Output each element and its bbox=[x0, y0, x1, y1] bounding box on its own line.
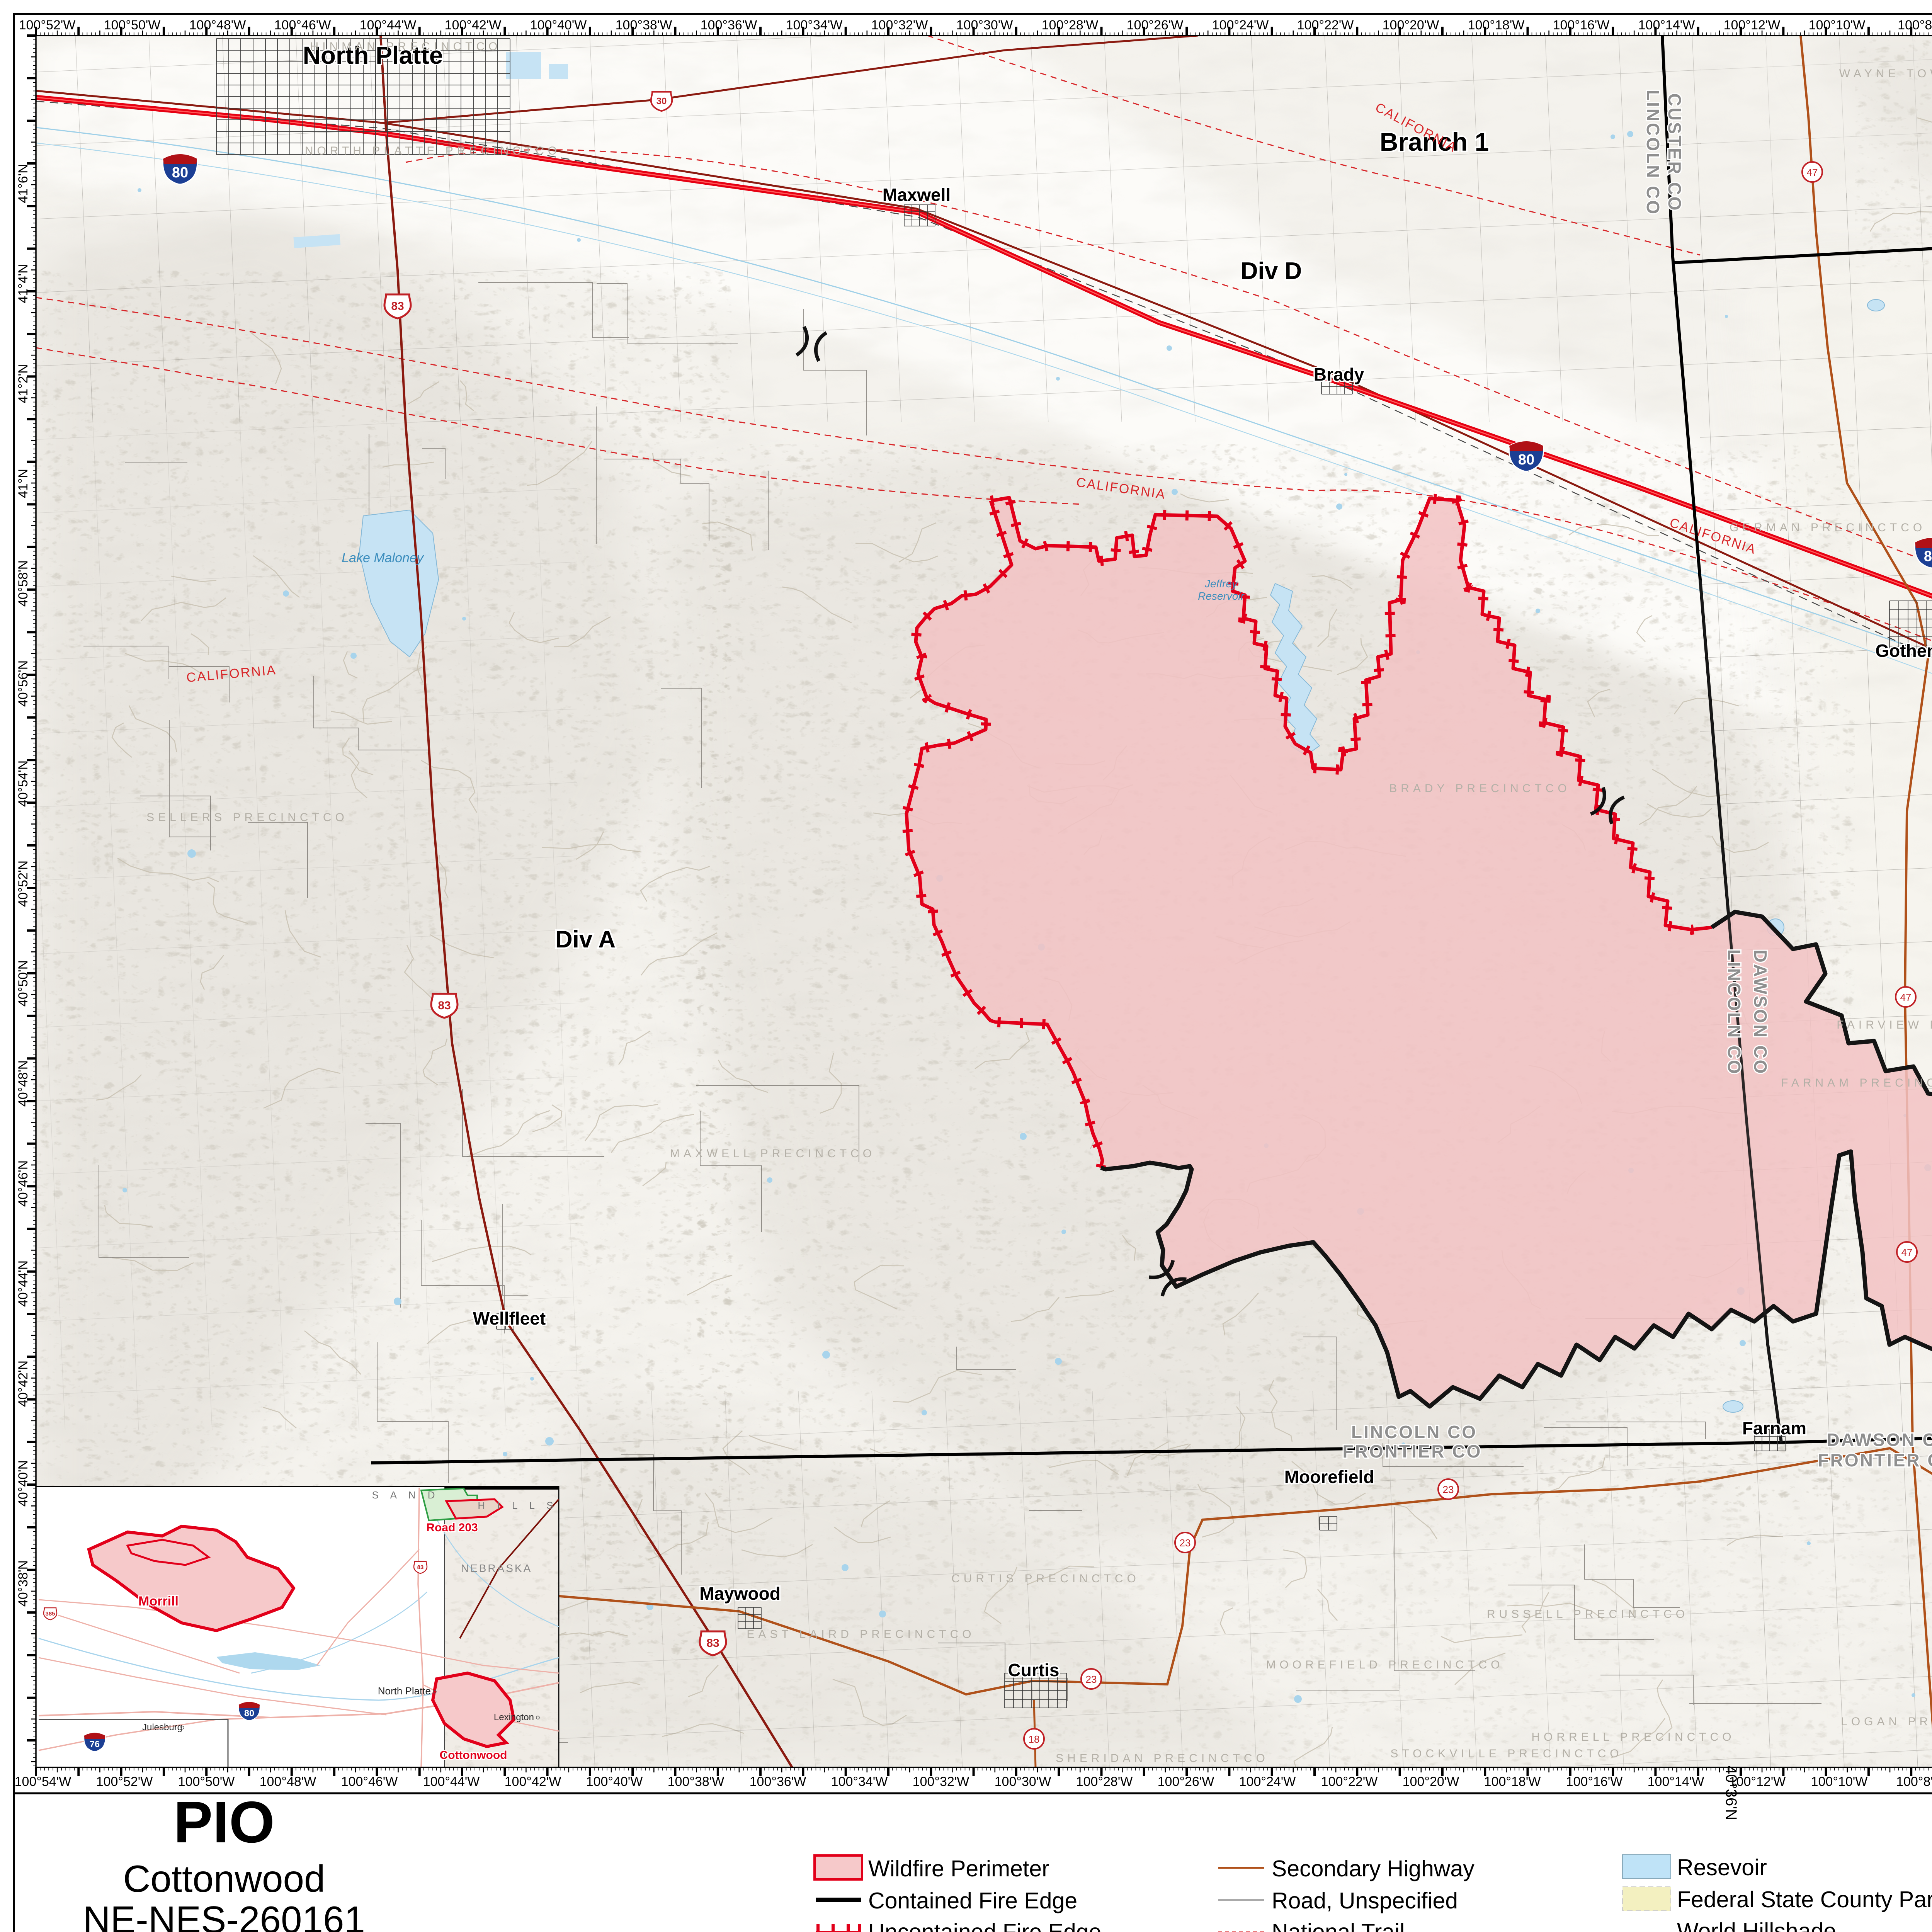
svg-text:RUSSELL PRECINCTCO: RUSSELL PRECINCTCO bbox=[1487, 1608, 1689, 1621]
svg-text:EAST LAIRD PRECINCTCO: EAST LAIRD PRECINCTCO bbox=[747, 1628, 975, 1641]
svg-text:41°2'N: 41°2'N bbox=[16, 364, 31, 403]
svg-text:80: 80 bbox=[172, 165, 188, 181]
svg-text:100°16'W: 100°16'W bbox=[1566, 1774, 1623, 1789]
svg-text:23: 23 bbox=[1443, 1484, 1454, 1495]
svg-text:100°24'W: 100°24'W bbox=[1239, 1774, 1296, 1789]
svg-text:Road 203: Road 203 bbox=[426, 1521, 478, 1534]
svg-text:Uncontained Fire Edge: Uncontained Fire Edge bbox=[868, 1919, 1101, 1932]
svg-text:385: 385 bbox=[45, 1611, 55, 1617]
svg-text:40°56'N: 40°56'N bbox=[16, 660, 31, 707]
svg-text:Cottonwood: Cottonwood bbox=[440, 1749, 507, 1762]
svg-text:100°12'W: 100°12'W bbox=[1729, 1774, 1786, 1789]
svg-text:BRADY PRECINCTCO: BRADY PRECINCTCO bbox=[1389, 782, 1571, 795]
svg-text:100°44'W: 100°44'W bbox=[360, 18, 417, 32]
svg-text:100°24'W: 100°24'W bbox=[1212, 18, 1269, 32]
svg-text:STOCKVILLE PRECINCTCO: STOCKVILLE PRECINCTCO bbox=[1390, 1747, 1622, 1760]
svg-text:Cottonwood: Cottonwood bbox=[123, 1857, 325, 1900]
svg-text:NORTH PLATTE PRECINCTCO: NORTH PLATTE PRECINCTCO bbox=[305, 145, 561, 157]
svg-text:41°N: 41°N bbox=[16, 469, 31, 498]
svg-text:Federal State County Parks: Federal State County Parks bbox=[1677, 1887, 1932, 1912]
svg-text:Julesburg: Julesburg bbox=[142, 1722, 182, 1733]
svg-text:41°4'N: 41°4'N bbox=[16, 264, 31, 303]
svg-text:40°50'N: 40°50'N bbox=[16, 960, 31, 1007]
svg-text:Morrill: Morrill bbox=[138, 1594, 179, 1609]
svg-text:100°38'W: 100°38'W bbox=[668, 1774, 724, 1789]
svg-text:100°40'W: 100°40'W bbox=[530, 18, 587, 32]
svg-text:83: 83 bbox=[438, 999, 451, 1012]
svg-text:83: 83 bbox=[391, 300, 404, 313]
svg-text:LINCOLN CO: LINCOLN CO bbox=[1351, 1422, 1477, 1442]
svg-text:Curtis: Curtis bbox=[1008, 1660, 1060, 1680]
svg-text:100°8'W: 100°8'W bbox=[1896, 1774, 1932, 1789]
svg-text:100°42'W: 100°42'W bbox=[445, 18, 502, 32]
svg-text:100°30'W: 100°30'W bbox=[956, 18, 1013, 32]
svg-text:MAXWELL PRECINCTCO: MAXWELL PRECINCTCO bbox=[670, 1147, 876, 1160]
svg-text:83: 83 bbox=[417, 1564, 424, 1571]
svg-text:FAIRVIEW PRECINCTCO: FAIRVIEW PRECINCTCO bbox=[1837, 1019, 1932, 1031]
svg-text:100°14'W: 100°14'W bbox=[1638, 18, 1695, 32]
svg-text:Resevoir: Resevoir bbox=[1677, 1855, 1767, 1880]
svg-text:Jeffrey: Jeffrey bbox=[1204, 578, 1238, 590]
svg-text:Lake Maloney: Lake Maloney bbox=[342, 551, 424, 565]
svg-text:100°22'W: 100°22'W bbox=[1297, 18, 1354, 32]
svg-text:100°14'W: 100°14'W bbox=[1648, 1774, 1704, 1789]
svg-text:100°36'W: 100°36'W bbox=[750, 1774, 806, 1789]
svg-text:FRONTIER CO: FRONTIER CO bbox=[1343, 1441, 1482, 1461]
svg-text:100°32'W: 100°32'W bbox=[871, 18, 928, 32]
svg-text:40°44'N: 40°44'N bbox=[16, 1260, 31, 1307]
svg-text:40°38'N: 40°38'N bbox=[16, 1560, 31, 1607]
svg-text:23: 23 bbox=[1180, 1537, 1191, 1549]
svg-text:GERMAN PRECINCTCO: GERMAN PRECINCTCO bbox=[1730, 521, 1926, 534]
svg-text:Brady: Brady bbox=[1314, 364, 1364, 384]
svg-text:H I L L S: H I L L S bbox=[478, 1500, 558, 1511]
svg-text:100°22'W: 100°22'W bbox=[1321, 1774, 1378, 1789]
svg-text:100°10'W: 100°10'W bbox=[1809, 18, 1866, 32]
svg-text:40°40'N: 40°40'N bbox=[16, 1460, 31, 1507]
svg-text:SELLERS PRECINCTCO: SELLERS PRECINCTCO bbox=[146, 811, 348, 824]
svg-text:DAWSON CO: DAWSON CO bbox=[1750, 950, 1770, 1075]
svg-text:100°54'W: 100°54'W bbox=[15, 1774, 71, 1789]
svg-text:NE-NES-260161: NE-NES-260161 bbox=[83, 1898, 365, 1932]
svg-text:FARNAM PRECINCTCO: FARNAM PRECINCTCO bbox=[1781, 1077, 1932, 1089]
svg-text:Wellfleet: Wellfleet bbox=[473, 1308, 546, 1328]
svg-text:North Platte: North Platte bbox=[378, 1685, 431, 1697]
svg-text:100°38'W: 100°38'W bbox=[616, 18, 672, 32]
svg-text:DAWSON CO: DAWSON CO bbox=[1827, 1430, 1932, 1450]
svg-text:23: 23 bbox=[1086, 1673, 1097, 1685]
svg-text:NEBRASKA: NEBRASKA bbox=[461, 1562, 532, 1574]
svg-text:100°40'W: 100°40'W bbox=[586, 1774, 643, 1789]
svg-text:40°42'N: 40°42'N bbox=[16, 1361, 31, 1407]
svg-text:80: 80 bbox=[1518, 452, 1534, 468]
svg-text:WAYNE TOWNSHIPCO: WAYNE TOWNSHIPCO bbox=[1839, 67, 1932, 80]
svg-text:40°54'N: 40°54'N bbox=[16, 760, 31, 807]
svg-text:Gothenburg: Gothenburg bbox=[1875, 641, 1932, 661]
svg-text:National Trail: National Trail bbox=[1272, 1919, 1405, 1932]
svg-text:Contained Fire Edge: Contained Fire Edge bbox=[868, 1888, 1077, 1913]
svg-text:76: 76 bbox=[90, 1739, 100, 1749]
svg-text:100°44'W: 100°44'W bbox=[423, 1774, 480, 1789]
svg-text:100°28'W: 100°28'W bbox=[1076, 1774, 1133, 1789]
svg-text:83: 83 bbox=[706, 1637, 719, 1650]
svg-text:40°58'N: 40°58'N bbox=[16, 560, 31, 607]
svg-text:100°42'W: 100°42'W bbox=[505, 1774, 561, 1789]
svg-text:Road, Unspecified: Road, Unspecified bbox=[1272, 1888, 1458, 1913]
svg-text:LINCOLN CO: LINCOLN CO bbox=[1724, 949, 1744, 1075]
svg-text:100°16'W: 100°16'W bbox=[1553, 18, 1610, 32]
svg-text:100°50'W: 100°50'W bbox=[104, 18, 161, 32]
svg-text:100°34'W: 100°34'W bbox=[786, 18, 843, 32]
svg-text:80: 80 bbox=[244, 1708, 254, 1718]
svg-text:Maxwell: Maxwell bbox=[883, 185, 951, 205]
svg-text:100°18'W: 100°18'W bbox=[1484, 1774, 1541, 1789]
svg-text:100°46'W: 100°46'W bbox=[274, 18, 331, 32]
svg-text:World Hillshade: World Hillshade bbox=[1677, 1918, 1836, 1932]
svg-text:FRONTIER CO: FRONTIER CO bbox=[1818, 1450, 1932, 1470]
svg-text:100°50'W: 100°50'W bbox=[178, 1774, 235, 1789]
svg-text:80: 80 bbox=[1924, 548, 1932, 565]
svg-text:100°12'W: 100°12'W bbox=[1724, 18, 1781, 32]
svg-text:Maywood: Maywood bbox=[699, 1583, 781, 1604]
svg-text:Div D: Div D bbox=[1241, 258, 1302, 284]
svg-text:100°52'W: 100°52'W bbox=[19, 18, 76, 32]
svg-text:100°52'W: 100°52'W bbox=[96, 1774, 153, 1789]
svg-text:40°52'N: 40°52'N bbox=[16, 861, 31, 907]
svg-text:100°20'W: 100°20'W bbox=[1383, 18, 1439, 32]
svg-text:40°46'N: 40°46'N bbox=[16, 1160, 31, 1207]
svg-text:PIO: PIO bbox=[173, 1789, 275, 1855]
svg-text:100°32'W: 100°32'W bbox=[913, 1774, 969, 1789]
svg-text:LINCOLN CO: LINCOLN CO bbox=[1643, 90, 1663, 216]
svg-text:100°34'W: 100°34'W bbox=[831, 1774, 888, 1789]
svg-text:Farnam: Farnam bbox=[1742, 1418, 1806, 1438]
svg-text:100°8'W: 100°8'W bbox=[1898, 18, 1932, 32]
svg-text:18: 18 bbox=[1029, 1733, 1040, 1745]
svg-text:HINMAN PRECINCTCO: HINMAN PRECINCTCO bbox=[310, 40, 501, 53]
svg-text:SHERIDAN PRECINCTCO: SHERIDAN PRECINCTCO bbox=[1056, 1752, 1269, 1765]
svg-text:MOOREFIELD PRECINCTCO: MOOREFIELD PRECINCTCO bbox=[1266, 1658, 1503, 1671]
svg-text:47: 47 bbox=[1900, 992, 1912, 1003]
svg-text:100°10'W: 100°10'W bbox=[1811, 1774, 1868, 1789]
svg-text:47: 47 bbox=[1901, 1247, 1913, 1258]
svg-text:CUSTER CO: CUSTER CO bbox=[1665, 94, 1685, 212]
svg-text:100°36'W: 100°36'W bbox=[701, 18, 757, 32]
svg-text:100°18'W: 100°18'W bbox=[1468, 18, 1525, 32]
svg-text:100°48'W: 100°48'W bbox=[189, 18, 246, 32]
svg-text:100°26'W: 100°26'W bbox=[1127, 18, 1184, 32]
svg-text:47: 47 bbox=[1807, 167, 1818, 178]
svg-text:100°30'W: 100°30'W bbox=[995, 1774, 1051, 1789]
svg-text:100°20'W: 100°20'W bbox=[1403, 1774, 1459, 1789]
svg-text:CURTIS PRECINCTCO: CURTIS PRECINCTCO bbox=[951, 1572, 1140, 1585]
svg-text:41°6'N: 41°6'N bbox=[16, 164, 31, 203]
svg-text:Lexington: Lexington bbox=[494, 1712, 534, 1723]
svg-text:30: 30 bbox=[656, 96, 667, 107]
svg-text:100°26'W: 100°26'W bbox=[1158, 1774, 1214, 1789]
svg-text:Wildfire Perimeter: Wildfire Perimeter bbox=[868, 1856, 1049, 1881]
svg-text:100°28'W: 100°28'W bbox=[1042, 18, 1099, 32]
svg-text:Secondary Highway: Secondary Highway bbox=[1272, 1856, 1475, 1881]
svg-text:Moorefield: Moorefield bbox=[1284, 1467, 1374, 1487]
svg-text:HORRELL PRECINCTCO: HORRELL PRECINCTCO bbox=[1531, 1731, 1735, 1743]
svg-text:100°48'W: 100°48'W bbox=[260, 1774, 316, 1789]
svg-text:Reservoir: Reservoir bbox=[1198, 590, 1245, 602]
svg-text:S A N D: S A N D bbox=[372, 1489, 439, 1501]
svg-text:100°46'W: 100°46'W bbox=[341, 1774, 398, 1789]
svg-text:LOGAN PRECINCTCO: LOGAN PRECINCTCO bbox=[1841, 1715, 1932, 1728]
svg-text:Div A: Div A bbox=[555, 926, 616, 953]
svg-text:40°48'N: 40°48'N bbox=[16, 1060, 31, 1107]
